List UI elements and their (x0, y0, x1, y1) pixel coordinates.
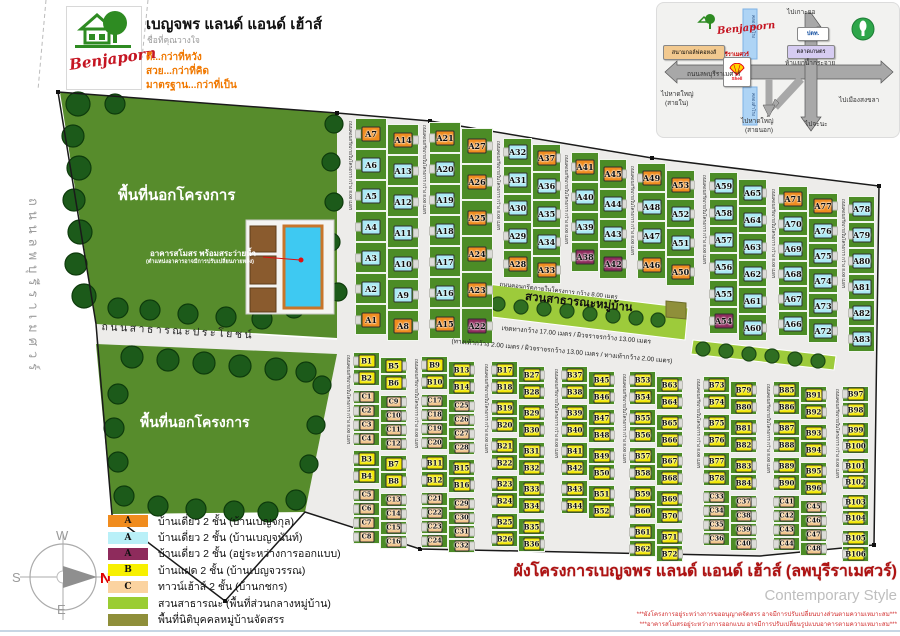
bottom-divider (0, 630, 900, 632)
legend-text: พื้นที่นิติบุคคลหมู่บ้านจัดสรร (158, 611, 284, 628)
tree-icon (313, 376, 331, 394)
tree-icon (108, 384, 128, 404)
tree-icon (229, 355, 251, 377)
compass-w: W (56, 528, 69, 543)
project-title: ผังโครงการเบญจพร แลนด์ แอนด์ เฮ้าส์ (ลพบ… (420, 559, 897, 584)
tree-icon (108, 298, 128, 318)
tree-icon (66, 92, 90, 116)
juristic-area (666, 301, 686, 319)
tree-icon (307, 416, 325, 434)
tree-icon (629, 311, 643, 325)
company-tagline: ชื่อที่คุณวางใจ (147, 33, 200, 47)
inset-label-5: (สายใน) (665, 98, 688, 108)
tree-icon (719, 344, 733, 358)
canal-label-lower: คลองสำโรง (751, 93, 757, 116)
location-inset-map: คลองสำโรง คลองสำโรง Benjaporn เบญจพร ลพบ… (656, 2, 900, 138)
slogan-1: ดี...กว่าที่หวัง (146, 50, 202, 65)
inset-label-8: ไปจะนะ (805, 119, 828, 129)
tree-icon (216, 307, 236, 327)
tree-icon (140, 300, 160, 320)
tree-icon (286, 490, 306, 510)
tree-icon (765, 349, 779, 363)
tree-icon (560, 304, 574, 318)
clubhouse (246, 220, 334, 314)
site-interior (305, 113, 879, 556)
legend: Aบ้านเดี่ยว 2 ชั้น (บ้านเบญจกุล)Aบ้านเดี… (108, 513, 341, 628)
tree-icon (491, 297, 505, 311)
tree-icon (537, 302, 551, 316)
compass-e: E (57, 602, 66, 617)
tree-icon (514, 300, 528, 314)
tree-icon (121, 346, 143, 368)
tree-icon (193, 352, 215, 374)
compass-s: S (12, 570, 21, 585)
legend-swatch: B (108, 564, 148, 576)
slogan-3: มาตรฐาน...กว่าที่เป็น (146, 78, 237, 93)
golf-course-label: สนามกอล์ฟคอหงส์ (672, 49, 716, 57)
legend-swatch: A (108, 532, 148, 544)
legend-row-6: พื้นที่นิติบุคคลหมู่บ้านจัดสรร (108, 611, 341, 627)
legend-text: ทาวน์เฮ้าส์ 2 ชั้น (บ้านกชกร) (158, 578, 287, 595)
swimming-pool (284, 226, 322, 308)
market-box: ตลาดเกษตร (787, 45, 835, 59)
legend-swatch: C (108, 581, 148, 593)
legend-row-1: Aบ้านเดี่ยว 2 ชั้น (บ้านเบญจนันท์) (108, 529, 341, 545)
legend-text: สวนสาธารณะ (พื้นที่ส่วนกลางหมู่บ้าน) (158, 595, 331, 612)
tree-icon (178, 304, 198, 324)
tree-icon (651, 313, 665, 327)
legend-text: บ้านแฝด 2 ชั้น (บ้านเบญจวรรณ) (158, 562, 305, 579)
ptt-label: ปตท. (807, 30, 819, 38)
market-label: ตลาดเกษตร (797, 48, 826, 56)
legend-row-5: สวนสาธารณะ (พื้นที่ส่วนกลางหมู่บ้าน) (108, 595, 341, 611)
inset-label-2: ห้าแยกน้ำกระจาย (785, 58, 835, 68)
tree-icon (322, 153, 340, 171)
compass: W S N E (12, 528, 111, 620)
tree-icon (583, 307, 597, 321)
inset-logo-script: Benjaporn (717, 20, 776, 37)
tree-icon (108, 452, 128, 472)
tree-icon (65, 253, 87, 275)
ptt-station-box: ปตท. (797, 27, 829, 41)
inset-label-0: ไปเกาะยอ (787, 7, 815, 17)
tree-icon (696, 342, 710, 356)
company-logo: Benjaporn (66, 6, 142, 90)
compass-needle (63, 566, 97, 588)
golf-course-box: สนามกอล์ฟคอหงส์ (663, 45, 725, 60)
legend-row-4: Cทาวน์เฮ้าส์ 2 ชั้น (บ้านกชกร) (108, 579, 341, 595)
tree-icon (300, 455, 318, 473)
tree-icon (265, 358, 287, 380)
footer: ผังโครงการเบญจพร แลนด์ แอนด์ เฮ้าส์ (ลพบ… (420, 559, 897, 629)
legend-swatch (108, 597, 148, 609)
tree-icon (606, 309, 620, 323)
legend-row-0: Aบ้านเดี่ยว 2 ชั้น (บ้านเบญจกุล) (108, 513, 341, 529)
inset-label-7: (สายนอก) (745, 125, 773, 135)
legend-swatch: A (108, 515, 148, 527)
slogan-2: สวย...กว่าที่คิด (146, 64, 209, 79)
style-name: Contemporary Style (420, 587, 897, 604)
tree-icon (114, 486, 134, 506)
inset-label-3: ถนนลพบุรีราเมศวร์ (687, 69, 741, 79)
tree-icon (811, 354, 825, 368)
inset-brand-logo: Benjaporn (697, 13, 775, 36)
mini-tree-icon (697, 13, 717, 31)
tree-icon (296, 362, 316, 382)
tree-icon (157, 349, 179, 371)
club-pointer-dot (299, 258, 304, 263)
legend-text: บ้านเดี่ยว 2 ชั้น (อยู่ระหว่างการออกแบบ) (158, 545, 341, 562)
tree-icon (742, 347, 756, 361)
house-tree-logo-icon (67, 7, 139, 51)
tree-icon (104, 418, 124, 438)
legend-swatch (108, 614, 148, 626)
legend-row-2: Aบ้านเดี่ยว 2 ชั้น (อยู่ระหว่างการออกแบบ… (108, 546, 341, 562)
legend-text: บ้านเดี่ยว 2 ชั้น (บ้านเบญจกุล) (158, 513, 294, 530)
disclaimer-2: ***อาคารสโมสรอยู่ระหว่างการออกแบบ อาจมีก… (420, 620, 897, 630)
tree-icon (325, 115, 343, 133)
legend-row-3: Bบ้านแฝด 2 ชั้น (บ้านเบญจวรรณ) (108, 562, 341, 578)
disclaimer-1: ***ผังโครงการอยู่ระหว่างการขออนุญาตจัดสร… (420, 610, 897, 620)
tree-icon (325, 193, 343, 211)
legend-text: บ้านเดี่ยว 2 ชั้น (บ้านเบญจนันท์) (158, 529, 302, 546)
legend-swatch: A (108, 548, 148, 560)
inset-label-1: ไปเมืองสงขลา (839, 95, 879, 105)
tree-icon (788, 352, 802, 366)
